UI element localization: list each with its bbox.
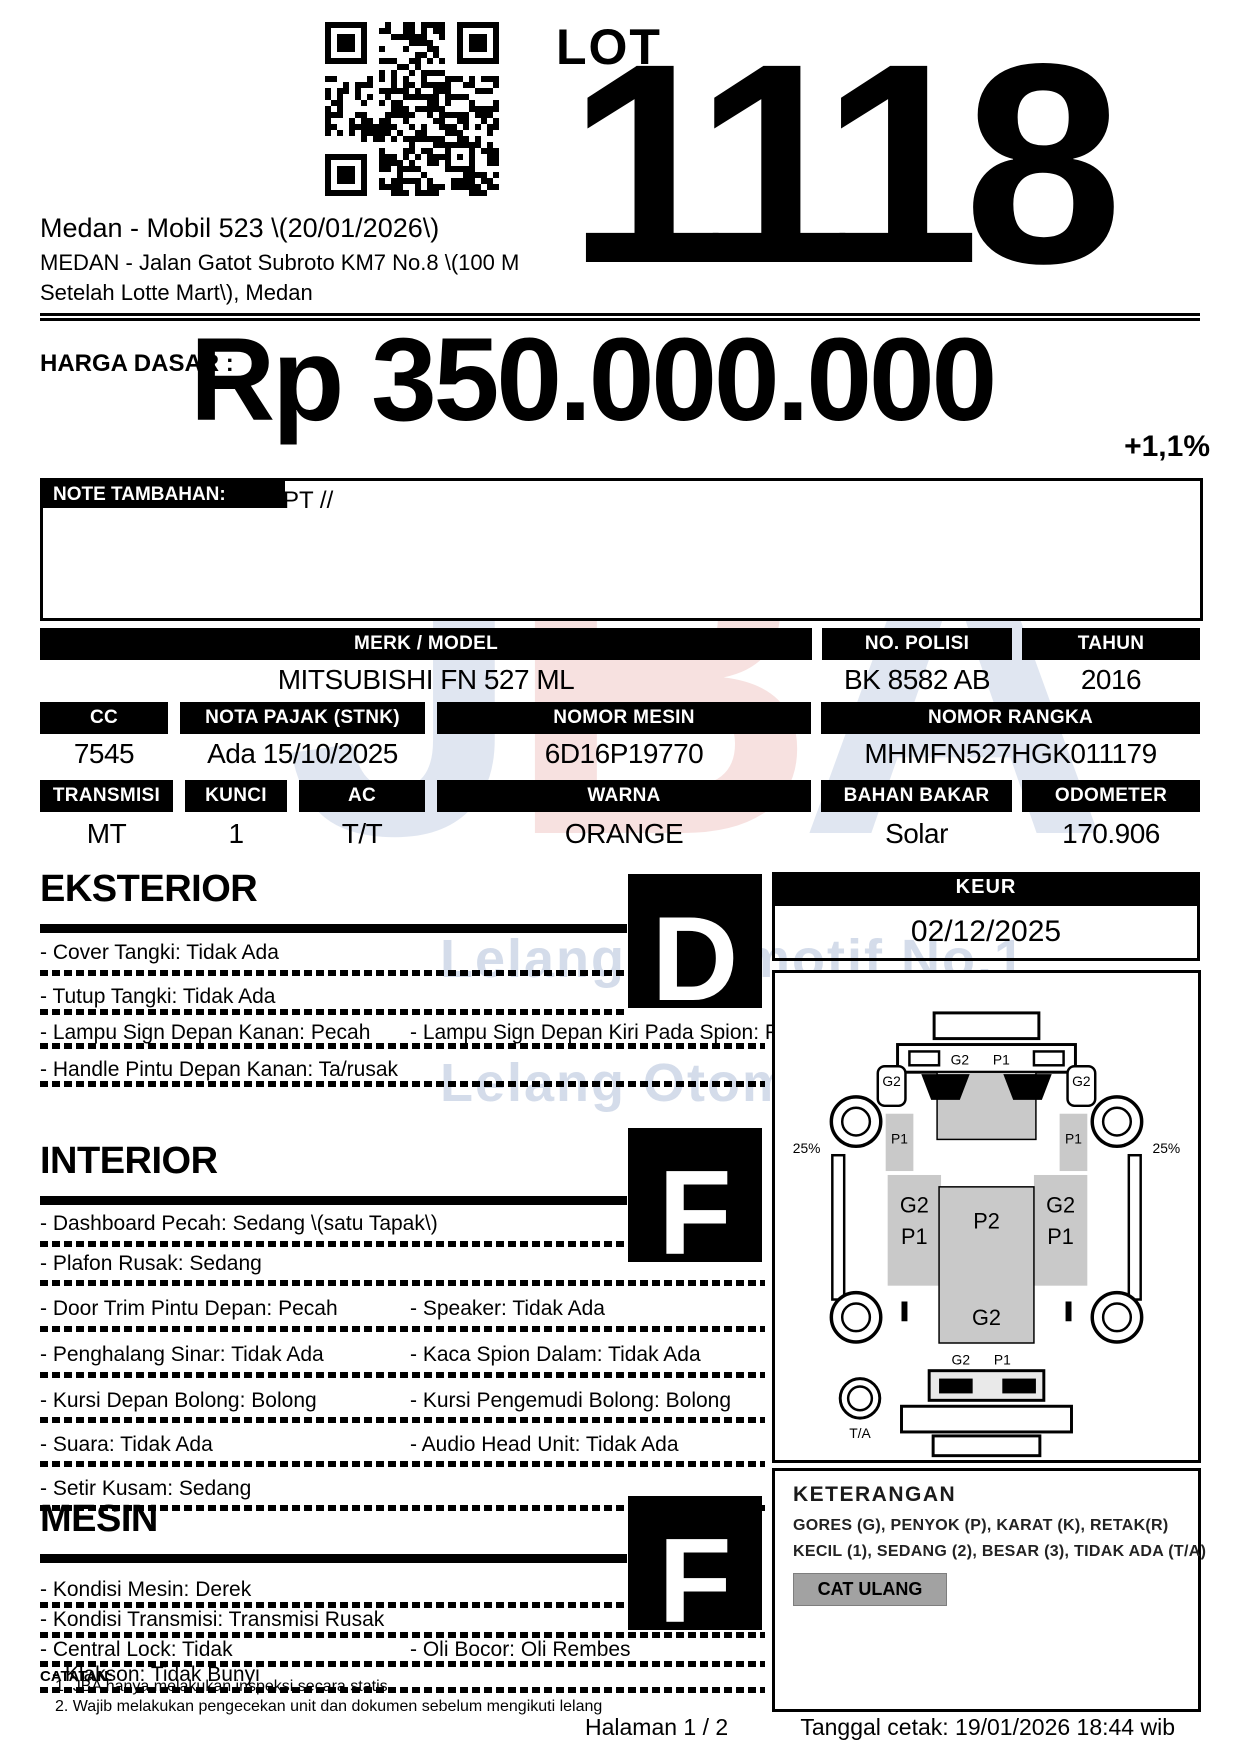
svg-text:G2: G2: [972, 1305, 1001, 1330]
eksterior-item: - Lampu Sign Depan Kiri Pada Spion: Peca…: [410, 1021, 824, 1045]
svg-text:P1: P1: [994, 1352, 1011, 1368]
svg-text:T/A: T/A: [849, 1425, 871, 1441]
keur-date: 02/12/2025: [772, 903, 1200, 961]
page-number: Halaman 1 / 2: [585, 1714, 728, 1741]
dotted-divider: [40, 970, 627, 976]
header-kunci: KUNCI: [185, 780, 287, 812]
svg-text:P1: P1: [1065, 1130, 1082, 1146]
header-nota-pajak: NOTA PAJAK (STNK): [180, 702, 425, 734]
qr-code: [325, 22, 499, 196]
svg-text:P1: P1: [1047, 1224, 1074, 1249]
auction-address-line2: Setelah Lotte Mart\), Medan: [40, 280, 313, 306]
grade-interior: F: [628, 1128, 762, 1262]
mesin-item: - Central Lock: Tidak: [40, 1638, 233, 1662]
dotted-divider: [40, 1372, 765, 1378]
eksterior-underline: [40, 924, 627, 933]
dotted-divider: [40, 1241, 627, 1247]
header-merk-model: MERK / MODEL: [40, 628, 812, 660]
svg-text:P1: P1: [993, 1051, 1010, 1067]
grade-eksterior: D: [628, 874, 762, 1008]
interior-item: - Penghalang Sinar: Tidak Ada: [40, 1343, 324, 1367]
svg-text:G2: G2: [1072, 1073, 1090, 1089]
value-kunci: 1: [185, 818, 287, 850]
value-nomor-mesin: 6D16P19770: [437, 738, 811, 770]
eksterior-item: - Cover Tangki: Tidak Ada: [40, 941, 279, 965]
value-tahun: 2016: [1022, 664, 1200, 696]
svg-text:G2: G2: [952, 1352, 970, 1368]
value-bahan-bakar: Solar: [821, 818, 1012, 850]
header-warna: WARNA: [437, 780, 811, 812]
value-cc: 7545: [40, 738, 168, 770]
note-label: NOTE TAMBAHAN:: [43, 481, 285, 508]
keterangan-line1: GORES (G), PENYOK (P), KARAT (K), RETAK(…: [793, 1517, 1169, 1535]
vehicle-top-view-diagram: G2 P1 G2 G2 P1 P1 25% 25%: [775, 973, 1198, 1460]
header-nomor-mesin: NOMOR MESIN: [437, 702, 811, 734]
interior-item: - Dashboard Pecah: Sedang \(satu Tapak\): [40, 1212, 438, 1236]
dotted-divider: [40, 1461, 765, 1467]
dotted-divider: [40, 1417, 765, 1423]
svg-text:G2: G2: [900, 1193, 929, 1218]
print-timestamp: Tanggal cetak: 19/01/2026 18:44 wib: [775, 1714, 1175, 1741]
header-cc: CC: [40, 702, 168, 734]
svg-text:P1: P1: [891, 1130, 908, 1146]
value-transmisi: MT: [40, 818, 173, 850]
value-ac: T/T: [299, 818, 425, 850]
svg-text:G2: G2: [882, 1073, 900, 1089]
dotted-divider: [40, 1326, 765, 1332]
damage-diagram-box: G2 P1 G2 G2 P1 P1 25% 25%: [772, 970, 1201, 1463]
grade-mesin: F: [628, 1496, 762, 1630]
keterangan-title: KETERANGAN: [793, 1483, 956, 1507]
interior-item: - Suara: Tidak Ada: [40, 1433, 213, 1457]
eksterior-item: - Handle Pintu Depan Kanan: Ta/rusak: [40, 1058, 398, 1082]
header-ac: AC: [299, 780, 425, 812]
svg-text:25%: 25%: [1153, 1140, 1181, 1156]
auction-address-line1: MEDAN - Jalan Gatot Subroto KM7 No.8 \(1…: [40, 250, 519, 276]
svg-text:G2: G2: [951, 1051, 969, 1067]
dotted-divider: [40, 1009, 627, 1015]
section-title-eksterior: EKSTERIOR: [40, 868, 257, 911]
header-nomor-rangka: NOMOR RANGKA: [821, 702, 1200, 734]
dotted-divider: [40, 1043, 765, 1049]
base-price-value: Rp 350.000.000: [190, 326, 994, 435]
value-nomor-rangka: MHMFN527HGK011179: [821, 738, 1200, 770]
interior-item: - Audio Head Unit: Tidak Ada: [410, 1433, 679, 1457]
keterangan-line2: KECIL (1), SEDANG (2), BESAR (3), TIDAK …: [793, 1543, 1206, 1561]
header-tahun: TAHUN: [1022, 628, 1200, 660]
value-warna: ORANGE: [437, 818, 811, 850]
header-transmisi: TRANSMISI: [40, 780, 173, 812]
keur-header: KEUR: [772, 872, 1200, 903]
value-nota-pajak: Ada 15/10/2025: [180, 738, 425, 770]
value-no-polisi: BK 8582 AB: [822, 664, 1012, 696]
value-odometer: 170.906: [1022, 818, 1200, 850]
value-merk-model: MITSUBISHI FN 527 ML: [40, 664, 812, 696]
dotted-divider: [40, 1081, 765, 1087]
footer-note-2: 2. Wajib melakukan pengecekan unit dan d…: [55, 1698, 602, 1716]
mesin-item: - Kondisi Mesin: Derek: [40, 1578, 251, 1602]
header-no-polisi: NO. POLISI: [822, 628, 1012, 660]
interior-item: - Kursi Pengemudi Bolong: Bolong: [410, 1389, 731, 1413]
section-title-interior: INTERIOR: [40, 1140, 218, 1183]
mesin-item: - Oli Bocor: Oli Rembes: [410, 1638, 631, 1662]
lot-number: 1118: [568, 50, 1107, 278]
price-change-badge: +1,1%: [1010, 430, 1210, 464]
interior-item: - Door Trim Pintu Depan: Pecah: [40, 1297, 338, 1321]
footer-note-1: 1. JBA hanya melakukan inspeksi secara s…: [55, 1678, 388, 1696]
header-bahan-bakar: BAHAN BAKAR: [821, 780, 1012, 812]
interior-underline: [40, 1196, 627, 1205]
keterangan-box: KETERANGAN GORES (G), PENYOK (P), KARAT …: [772, 1468, 1201, 1712]
mesin-item: - Kondisi Transmisi: Transmisi Rusak: [40, 1608, 384, 1632]
eksterior-item: - Lampu Sign Depan Kanan: Pecah: [40, 1021, 370, 1045]
auction-lot-sheet: JBA Lelang Otomotif No.1 Lelang Otomotif…: [0, 0, 1240, 1754]
mesin-underline: [40, 1554, 627, 1563]
svg-text:G2: G2: [1046, 1193, 1075, 1218]
dotted-divider: [40, 1280, 765, 1286]
cat-ulang-badge: CAT ULANG: [793, 1573, 947, 1606]
section-title-mesin: MESIN: [40, 1498, 158, 1541]
svg-text:P2: P2: [973, 1208, 1000, 1233]
svg-text:25%: 25%: [793, 1140, 821, 1156]
interior-item: - Plafon Rusak: Sedang: [40, 1252, 262, 1276]
interior-item: - Speaker: Tidak Ada: [410, 1297, 605, 1321]
eksterior-item: - Tutup Tangki: Tidak Ada: [40, 985, 275, 1009]
interior-item: - Kaca Spion Dalam: Tidak Ada: [410, 1343, 701, 1367]
interior-item: - Kursi Depan Bolong: Bolong: [40, 1389, 317, 1413]
svg-text:P1: P1: [901, 1224, 928, 1249]
auction-title: Medan - Mobil 523 \(20/01/2026\): [40, 213, 439, 244]
header-odometer: ODOMETER: [1022, 780, 1200, 812]
